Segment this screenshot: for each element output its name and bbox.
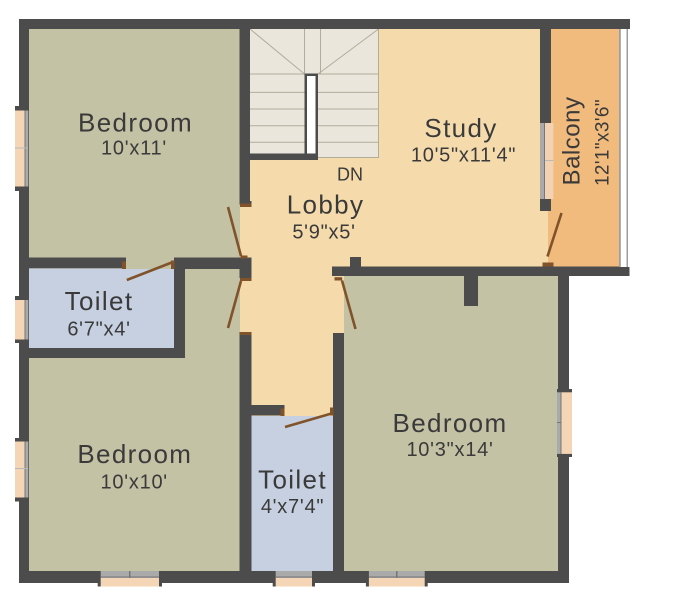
svg-text:6'7"x4': 6'7"x4' — [67, 319, 130, 341]
svg-text:DN: DN — [337, 165, 363, 185]
svg-text:12'1"x3'6": 12'1"x3'6" — [593, 99, 614, 186]
svg-text:Study: Study — [424, 113, 497, 143]
svg-text:5'9"x5': 5'9"x5' — [292, 222, 355, 244]
svg-text:Toilet: Toilet — [65, 286, 134, 316]
svg-text:Bedroom: Bedroom — [77, 439, 192, 469]
svg-text:10'x11': 10'x11' — [101, 138, 167, 160]
svg-text:10'5"x11'4": 10'5"x11'4" — [411, 145, 516, 167]
svg-text:Lobby: Lobby — [287, 190, 365, 220]
svg-text:10'x10': 10'x10' — [101, 472, 168, 494]
svg-text:4'x7'4": 4'x7'4" — [261, 496, 324, 518]
svg-text:Balcony: Balcony — [559, 97, 586, 186]
svg-text:Toilet: Toilet — [258, 465, 327, 495]
svg-text:Bedroom: Bedroom — [393, 408, 508, 438]
svg-text:Bedroom: Bedroom — [78, 108, 193, 138]
svg-text:10'3"x14': 10'3"x14' — [406, 439, 493, 461]
